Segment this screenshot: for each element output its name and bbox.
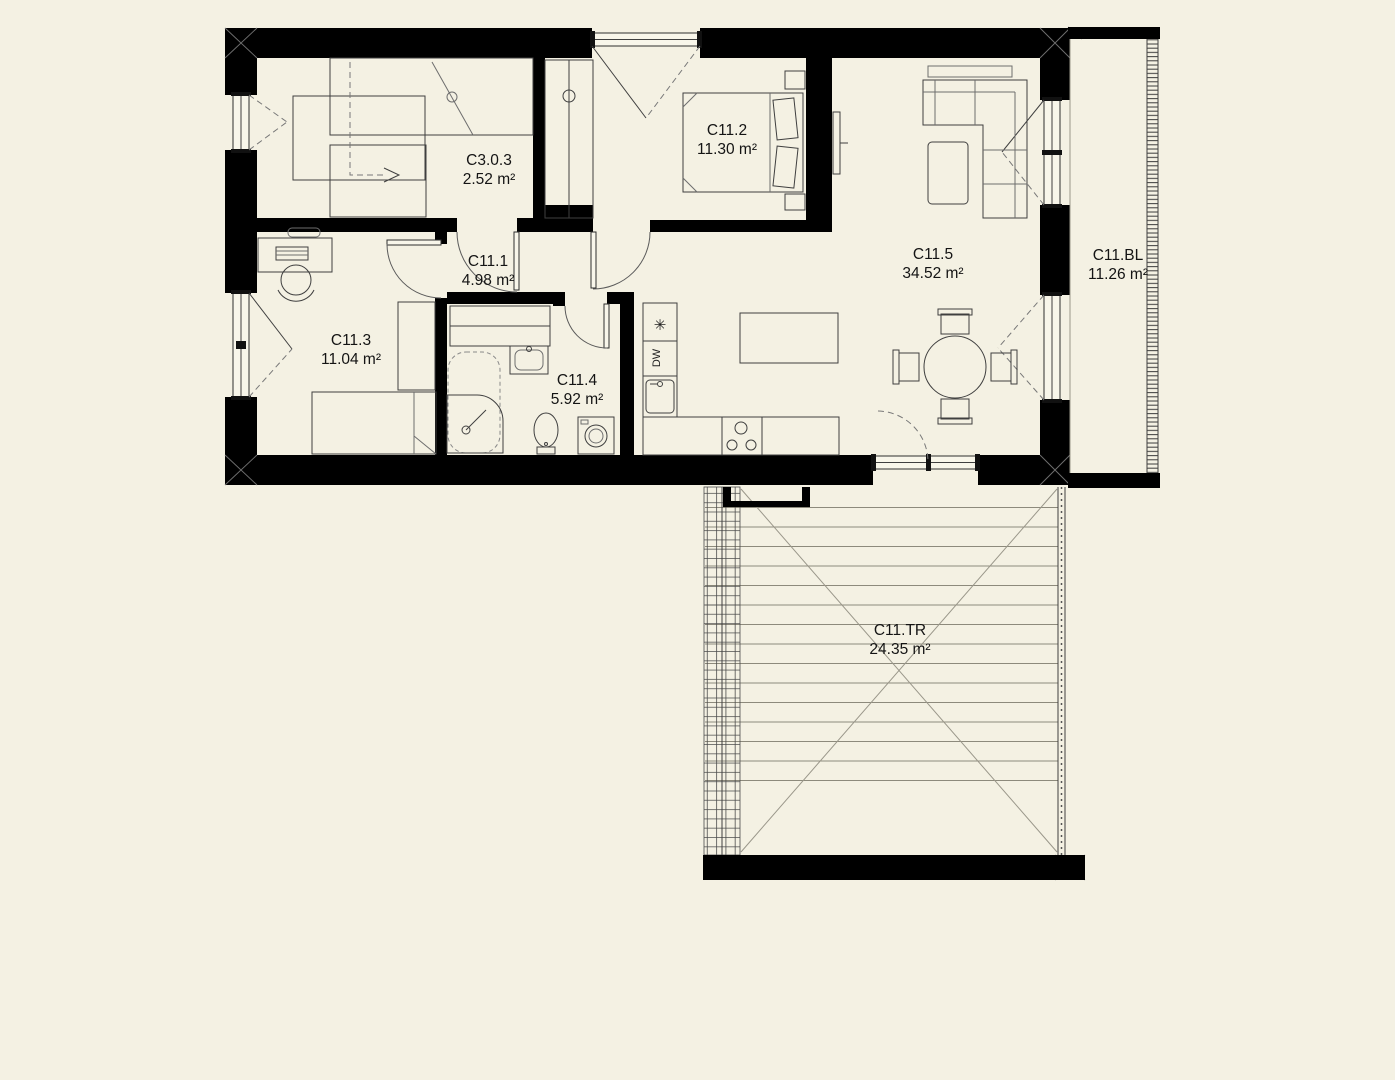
freezer-icon: ✳ bbox=[654, 317, 667, 334]
room-id: C11.2 bbox=[697, 121, 757, 140]
bed-single bbox=[312, 392, 436, 454]
floor-plan-svg: ✳ DW bbox=[0, 0, 1395, 1080]
bathroom-sink bbox=[510, 346, 548, 374]
room-id: C11.1 bbox=[462, 252, 515, 271]
room-id: C11.4 bbox=[551, 371, 604, 390]
terrace-door-glazing bbox=[871, 411, 980, 471]
room-label-c11-4: C11.4 5.92 m² bbox=[551, 371, 604, 409]
kitchen-island bbox=[740, 313, 838, 363]
dining-table-set bbox=[893, 309, 1017, 424]
terrace-railing bbox=[1058, 487, 1065, 855]
room-area: 34.52 m² bbox=[902, 264, 963, 283]
room-area: 5.92 m² bbox=[551, 390, 604, 409]
room-label-c11-bl: C11.BL 11.26 m² bbox=[1088, 246, 1148, 284]
hall-closet bbox=[450, 306, 550, 346]
room-id: C11.3 bbox=[321, 331, 381, 350]
room-id: C3.0.3 bbox=[463, 151, 516, 170]
room-label-c11-tr: C11.TR 24.35 m² bbox=[869, 621, 930, 659]
desk-chair bbox=[278, 265, 314, 301]
floor-plan-page: ✳ DW bbox=[0, 0, 1395, 1080]
room-label-c11-3: C11.3 11.04 m² bbox=[321, 331, 381, 369]
room-area: 11.26 m² bbox=[1088, 265, 1148, 284]
room-id: C11.5 bbox=[902, 245, 963, 264]
room3-door bbox=[387, 240, 441, 298]
bathroom-door bbox=[565, 304, 609, 348]
window-living-balcony-1 bbox=[1002, 97, 1062, 208]
tv bbox=[833, 112, 848, 174]
nightstand-top bbox=[785, 71, 805, 89]
stove bbox=[722, 417, 762, 455]
bedroom-door bbox=[591, 232, 650, 289]
dishwasher-label: DW bbox=[651, 348, 663, 367]
toilet bbox=[534, 413, 558, 454]
kitchen-counter bbox=[643, 417, 839, 455]
staircase bbox=[293, 58, 533, 217]
terrace-door-swing bbox=[878, 411, 928, 462]
window-living-balcony-2 bbox=[998, 292, 1062, 403]
stair-break-line bbox=[432, 62, 473, 135]
kitchen-sink bbox=[646, 380, 674, 413]
window-stair-left bbox=[231, 92, 287, 153]
room-id: C11.BL bbox=[1088, 246, 1148, 265]
doors bbox=[387, 232, 650, 348]
nightstand-bottom bbox=[785, 194, 805, 210]
wardrobe-bedroom bbox=[545, 60, 593, 218]
room-id: C11.TR bbox=[869, 621, 930, 640]
room-area: 2.52 m² bbox=[463, 170, 516, 189]
shower bbox=[447, 395, 503, 453]
terrace-bottom-wall bbox=[703, 855, 1085, 880]
coffee-table bbox=[928, 142, 968, 204]
terrace-trellis bbox=[704, 487, 740, 855]
bedroom-furniture bbox=[545, 60, 805, 218]
room-area: 11.30 m² bbox=[697, 140, 757, 159]
bathtub-optional bbox=[448, 352, 500, 453]
room-label-c11-2: C11.2 11.30 m² bbox=[697, 121, 757, 159]
terrace bbox=[703, 487, 1085, 880]
living-furniture bbox=[740, 66, 1027, 424]
balcony-railing bbox=[1147, 39, 1158, 473]
room-area: 11.04 m² bbox=[321, 350, 381, 369]
washing-machine bbox=[578, 417, 614, 454]
room-area: 24.35 m² bbox=[869, 640, 930, 659]
room-label-c11-1: C11.1 4.98 m² bbox=[462, 252, 515, 290]
room-label-c3-0-3: C3.0.3 2.52 m² bbox=[463, 151, 516, 189]
wardrobe-room3 bbox=[398, 302, 435, 390]
kitchen: ✳ DW bbox=[643, 303, 839, 455]
window-room3-left bbox=[231, 290, 292, 400]
room-label-c11-5: C11.5 34.52 m² bbox=[902, 245, 963, 283]
room-area: 4.98 m² bbox=[462, 271, 515, 290]
